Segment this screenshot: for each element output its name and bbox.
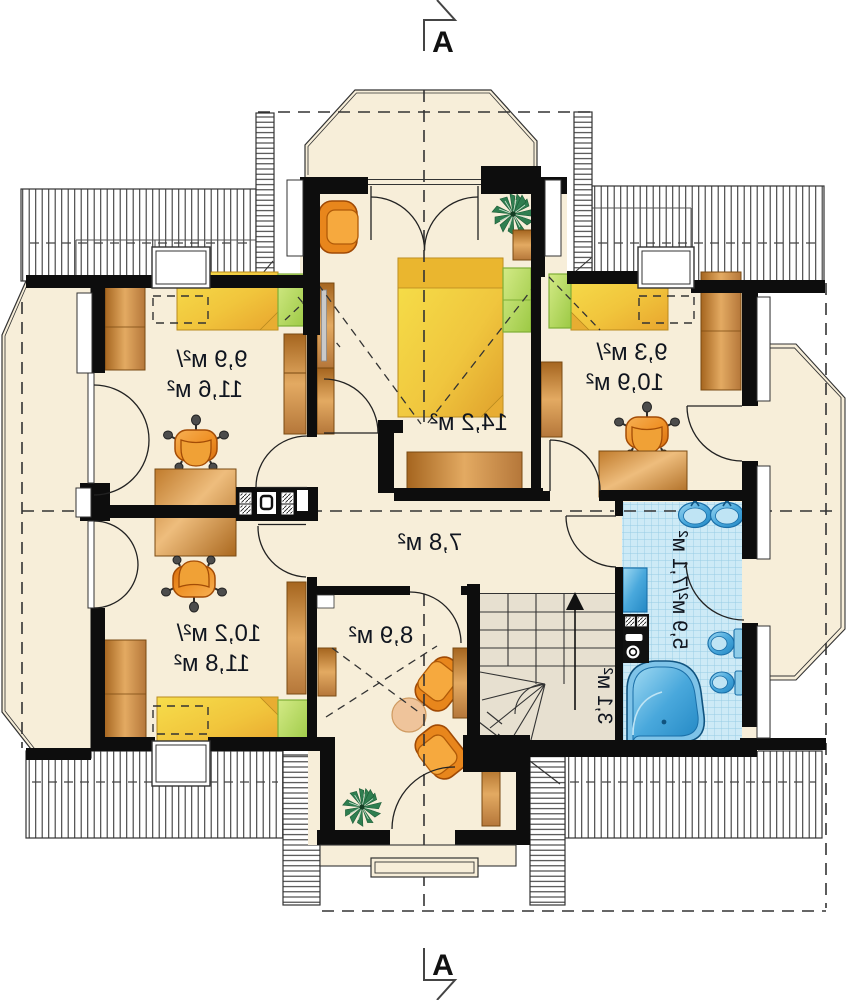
svg-text:10,2 м²/: 10,2 м²/ bbox=[176, 620, 261, 647]
svg-text:11,6 м²: 11,6 м² bbox=[167, 376, 243, 403]
svg-text:8,9 м²: 8,9 м² bbox=[349, 622, 414, 649]
svg-text:A: A bbox=[432, 26, 454, 59]
svg-text:7,8 м²: 7,8 м² bbox=[398, 529, 463, 556]
svg-text:5,9 м²/7,1 м²: 5,9 м²/7,1 м² bbox=[668, 531, 691, 650]
svg-text:14,2 м²: 14,2 м² bbox=[430, 409, 508, 436]
svg-text:A: A bbox=[432, 949, 454, 982]
svg-text:9,3 м²/: 9,3 м²/ bbox=[596, 339, 668, 366]
svg-text:3,1 м²: 3,1 м² bbox=[593, 668, 616, 724]
svg-text:11,8 м²: 11,8 м² bbox=[174, 650, 250, 677]
svg-text:10,9 м²: 10,9 м² bbox=[586, 369, 664, 396]
svg-text:9,9 м²/: 9,9 м²/ bbox=[176, 346, 248, 373]
